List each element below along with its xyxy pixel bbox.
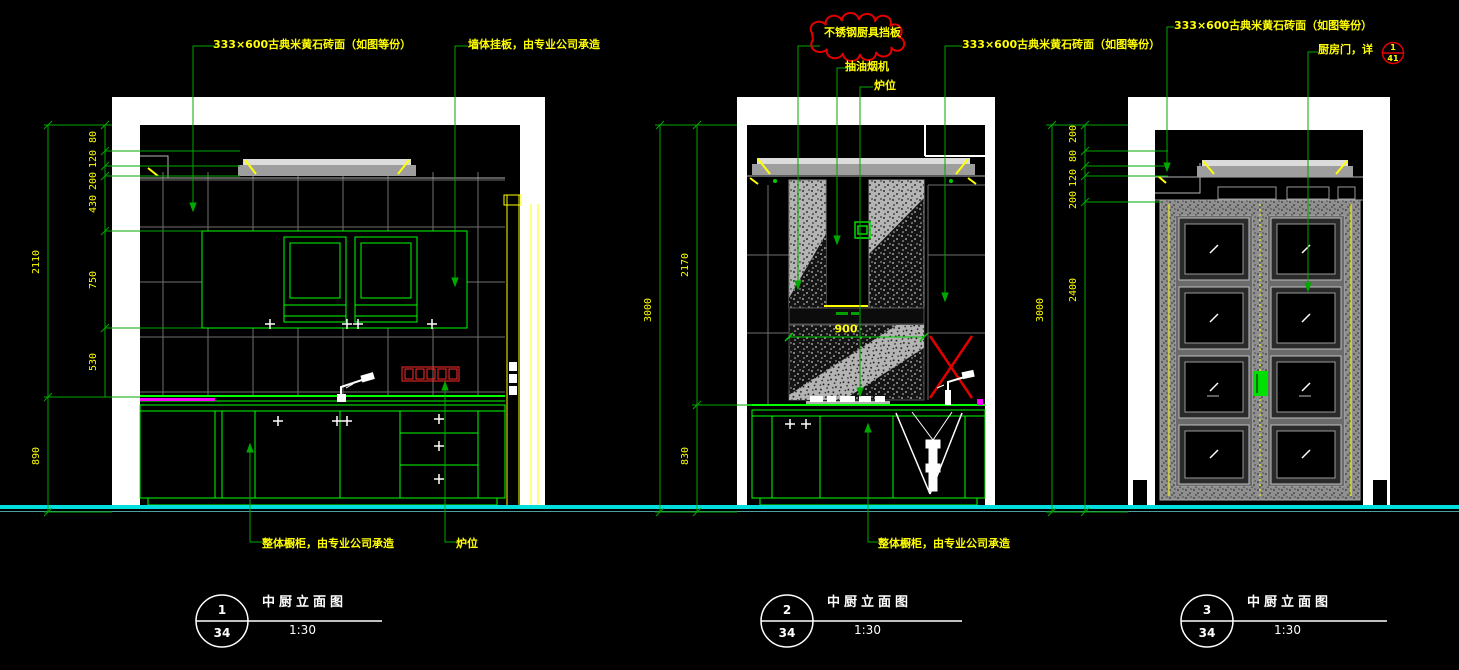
label-el3-tile-finish: 333×600古典米黄石砖面（如图等份） — [1174, 20, 1372, 31]
dim-el1-stack-0: 80 — [89, 131, 99, 143]
label-el2-hood: 抽油烟机 — [845, 61, 889, 72]
dim-el1-chain-1: 750 — [89, 271, 99, 289]
view1-number: 1 — [218, 604, 226, 616]
label-el1-cabinet: 整体橱柜，由专业公司承造 — [262, 538, 394, 549]
view2-title: 中厨立面图 — [827, 596, 912, 609]
label-el3-door: 厨房门，详 — [1318, 44, 1373, 55]
dim-el3-stack-3: 200 — [1069, 191, 1079, 209]
dim-el1-chain-0: 430 — [89, 195, 99, 213]
wall-cabinets — [202, 231, 467, 328]
elevation-2 — [737, 97, 995, 506]
dim-el1-chain-2: 530 — [89, 353, 99, 371]
view3-scale: 1:30 — [1274, 624, 1301, 636]
view1-title: 中厨立面图 — [262, 596, 347, 609]
cornice-molding — [1155, 160, 1363, 193]
view3-title: 中厨立面图 — [1247, 596, 1332, 609]
cooktop — [806, 396, 890, 405]
elevation-1 — [112, 97, 545, 506]
socket-icon — [855, 222, 870, 238]
detail-bubble-sheet: 41 — [1387, 55, 1398, 63]
label-el2-tile-finish: 333×600古典米黄石砖面（如图等份） — [962, 39, 1160, 50]
dim-el2-hood-width: 900 — [835, 324, 858, 335]
view3-sheet: 34 — [1199, 627, 1216, 639]
label-el2-cabinet: 整体橱柜，由专业公司承造 — [878, 538, 1010, 549]
countertop — [140, 396, 505, 401]
view3-number: 3 — [1203, 604, 1211, 616]
dim-el3-stack-2: 120 — [1069, 169, 1079, 187]
dim-el3-door-height: 2400 — [1069, 278, 1079, 302]
dim-el1-total-upper: 2110 — [32, 250, 42, 274]
sink-cabinet — [896, 412, 962, 494]
base-cabinet-handles — [785, 419, 811, 429]
kitchen-door — [1133, 200, 1387, 506]
range-hood — [789, 180, 924, 324]
drawing-linework — [0, 0, 1459, 670]
dim-el2-upper: 2170 — [681, 253, 691, 277]
dim-el3-stack-0: 200 — [1069, 125, 1079, 143]
stove-knob-rack — [402, 367, 459, 381]
cornice-molding — [747, 158, 985, 184]
label-el2-cloud: 不锈钢厨具挡板 — [824, 27, 901, 38]
dim-el3-stack-1: 80 — [1069, 150, 1079, 162]
label-el1-tile-finish: 333×600古典米黄石砖面（如图等份） — [213, 39, 411, 50]
dim-el1-stack-2: 200 — [89, 172, 99, 190]
cornice-molding — [140, 156, 505, 178]
blocked-cell-x-mark — [930, 336, 972, 398]
base-cabinet-handles — [273, 414, 444, 484]
view2-number: 2 — [783, 604, 791, 616]
view1-sheet: 34 — [214, 627, 231, 639]
dim-el2-lower: 830 — [681, 447, 691, 465]
cad-canvas[interactable]: 333×600古典米黄石砖面（如图等份） 墙体挂板，由专业公司承造 不锈钢厨具挡… — [0, 0, 1459, 670]
dim-el1-stack-1: 120 — [89, 150, 99, 168]
base-cabinets — [140, 405, 505, 505]
view1-scale: 1:30 — [289, 624, 316, 636]
door-handle — [1253, 371, 1268, 396]
dim-el3-total: 3000 — [1036, 298, 1046, 322]
label-el1-wall-panel: 墙体挂板，由专业公司承造 — [468, 39, 600, 50]
view2-sheet: 34 — [779, 627, 796, 639]
view2-scale: 1:30 — [854, 624, 881, 636]
label-el2-stove: 炉位 — [874, 80, 896, 91]
detail-bubble-number: 1 — [1390, 44, 1396, 52]
label-el1-stove: 炉位 — [456, 538, 478, 549]
floor-line — [0, 505, 1459, 512]
dim-el1-base: 890 — [32, 447, 42, 465]
dim-el2-total: 3000 — [644, 298, 654, 322]
